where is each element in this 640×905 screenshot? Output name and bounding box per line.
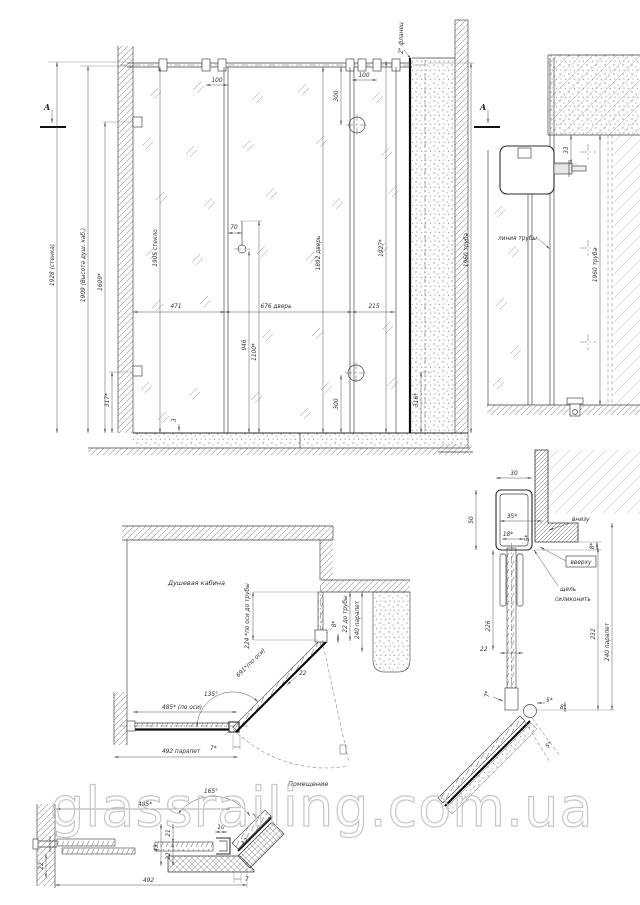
- dim-1927: 1927*: [379, 239, 385, 257]
- dim-8: 8*: [332, 621, 338, 628]
- dim-7: 7*: [485, 691, 491, 698]
- glass-band2: [155, 842, 213, 851]
- dim-50: 50: [469, 516, 475, 524]
- note-silicone-2: силиконить: [555, 597, 591, 603]
- dim-5b: 5*: [546, 698, 553, 704]
- room-label: Душевая кабина: [167, 579, 225, 587]
- right-wall-stub: [320, 537, 333, 580]
- dim-300-bottom: 300: [334, 398, 340, 409]
- dim-cabin-height: 1909 (Высота душ. каб.): [81, 228, 87, 302]
- dim-glass-height: 1905 стекло: [153, 229, 159, 267]
- dim-8: 8*: [590, 543, 596, 550]
- hinge-body: [505, 688, 518, 710]
- top-wall: [122, 526, 333, 540]
- dim-door-height: 1892 дверь: [316, 236, 322, 271]
- dim-fixed-axis: 485* (по оси): [162, 705, 202, 711]
- dim-pipe-height: 1960 труба: [464, 232, 470, 267]
- right-wall-concrete: [412, 58, 455, 433]
- detail-top-right: 33 линия трубы 1960 труба: [487, 55, 640, 416]
- drawing-sheet: A A 2" фланец 1928 (стенка) 1909 (Высота…: [0, 0, 640, 905]
- dim-parapet-240: 240 парапет: [355, 600, 361, 639]
- dim-22-wall: 22: [39, 862, 45, 870]
- end-profile: [216, 838, 230, 854]
- dim-22: 22: [299, 671, 307, 677]
- dim-22: 22: [480, 647, 488, 653]
- dim-parapet-240: 240 парапет: [605, 622, 611, 661]
- left-wall: [114, 692, 127, 745]
- glass-marks: [493, 206, 521, 389]
- note-top: вверху: [571, 560, 593, 566]
- dim-226: 226: [486, 620, 492, 631]
- wall-clamp-upper: [133, 117, 142, 127]
- parapet-column: [373, 592, 410, 672]
- dim-70: 70: [230, 225, 238, 231]
- elevation-view: A A 2" фланец 1928 (стенка) 1909 (Высота…: [40, 20, 500, 455]
- dim-100-right: 100: [358, 73, 369, 79]
- section-label: A: [479, 102, 486, 112]
- glass-clamp-right: [517, 554, 523, 606]
- dim-35: 35*: [507, 514, 517, 520]
- centerline-crosses: [580, 144, 596, 350]
- section-mark-right: A: [474, 102, 500, 127]
- dim-100-left: 100: [211, 78, 222, 84]
- dim-wall-height: 1928 (стенка): [50, 244, 56, 286]
- bolt-head: [33, 839, 38, 849]
- dim-18: 18*: [503, 532, 513, 538]
- dim-1609: 1609*: [98, 273, 104, 291]
- dim-1100: 1100*: [252, 343, 258, 361]
- dim-axis-to-pipe: 224 *по оси до трубы: [245, 583, 251, 649]
- door-glass: [233, 638, 326, 731]
- dim-7: 7: [245, 877, 249, 883]
- section-label: A: [43, 102, 50, 112]
- angle-135: 135°: [204, 692, 218, 698]
- parapet-edge: [321, 580, 410, 592]
- dim-232: 232: [591, 628, 597, 639]
- dim-7: 7*: [210, 746, 217, 752]
- left-wall-hatch: [118, 46, 133, 433]
- hinge-knuckle: [524, 705, 537, 718]
- clamp-profile: [57, 839, 115, 846]
- dim-43: 43: [154, 844, 160, 852]
- glass-band: [62, 848, 135, 854]
- dim-curb-3: 3: [172, 418, 178, 422]
- dim-22b: 22: [166, 852, 172, 860]
- dim-22-pipe: 22 до трубы: [343, 595, 349, 633]
- dim-317: 317*: [105, 393, 111, 407]
- dim-33: 33: [564, 146, 570, 154]
- dim-316: 316*: [414, 393, 420, 407]
- watermark: glassrailing.com.ua: [50, 776, 593, 839]
- plan-view: Душевая кабина Помещение 224 *по оси до …: [114, 526, 410, 788]
- glass-clamp-left: [500, 554, 506, 606]
- dim-door-width: 676 дверь: [261, 304, 292, 310]
- dim-492: 492: [143, 878, 154, 884]
- dim-parapet-492: 492 парапет: [162, 749, 201, 755]
- dim-5c: 5*: [545, 741, 554, 750]
- right-wall-hatch: [455, 20, 468, 433]
- curb: [133, 433, 468, 448]
- dim-pipe-height: 1960 труба: [593, 247, 599, 282]
- detail-profile-section: 30 50 35* 18* 5* внизу вверху 8* щель си…: [438, 444, 640, 814]
- flange-note: 2" фланец: [399, 22, 405, 54]
- ground-hatch: [88, 448, 470, 455]
- section-mark-left: A: [40, 102, 66, 127]
- dim-300-top: 300: [334, 90, 340, 101]
- dim-946: 946: [242, 339, 248, 350]
- dim-5: 5*: [525, 535, 531, 542]
- door-swing-arc: [233, 729, 349, 768]
- cad-drawing: A A 2" фланец 1928 (стенка) 1909 (Высота…: [0, 0, 640, 905]
- note-silicone-1: щель: [560, 587, 576, 593]
- dim-door-axis: 691*(по оси): [236, 648, 267, 679]
- dim-30: 30: [510, 471, 518, 477]
- note-bottom: внизу: [572, 517, 590, 523]
- pipe-line-label: линия трубы: [497, 236, 537, 242]
- wall-clamp-lower: [133, 366, 142, 376]
- glass-marks: [141, 82, 399, 423]
- dim-215: 215: [368, 304, 379, 310]
- dim-471: 471: [170, 304, 181, 310]
